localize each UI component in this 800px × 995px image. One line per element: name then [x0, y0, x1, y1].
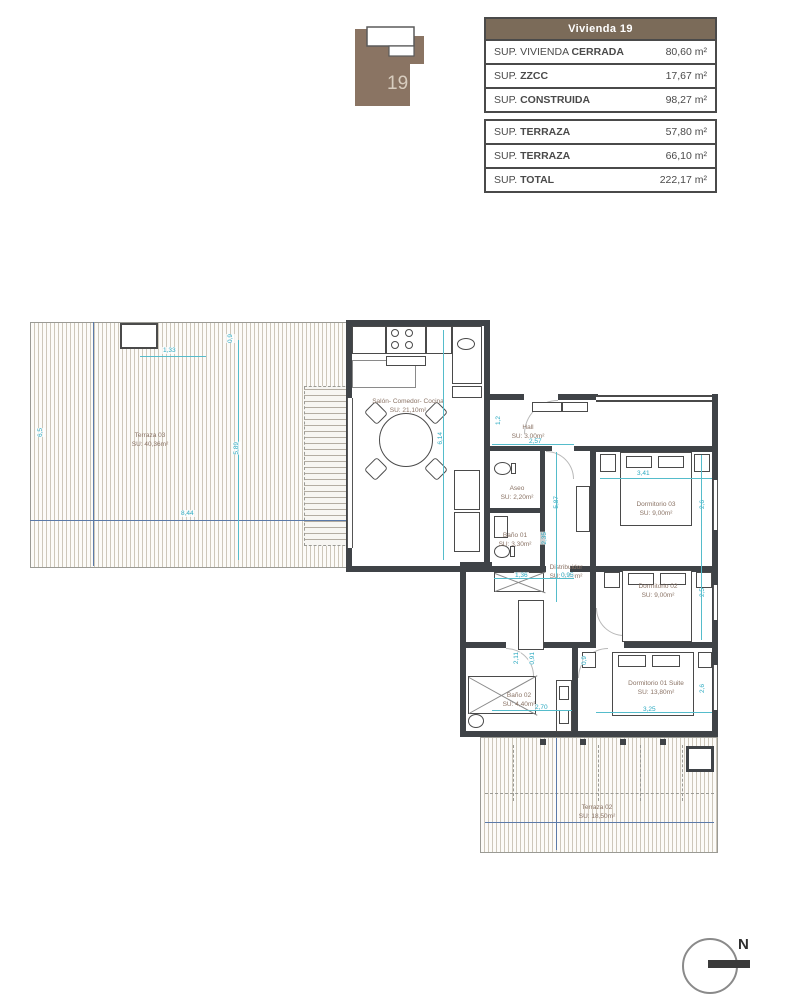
- dimension-label: 1,33: [162, 347, 177, 354]
- hob-burner: [391, 341, 399, 349]
- outdoor-box: [686, 746, 714, 772]
- dimension-label: 0,9: [580, 656, 589, 665]
- construction-line: [556, 738, 557, 850]
- pillow: [658, 456, 684, 468]
- row-label: SUP. TERRAZA: [494, 150, 570, 162]
- vanity-basin: [559, 686, 569, 700]
- dimension-label: 2,35: [540, 532, 549, 545]
- hob-burner: [391, 329, 399, 337]
- dimension-label: 2,11: [512, 652, 521, 664]
- toilet: [468, 714, 484, 728]
- hall-cabinet: [532, 402, 562, 412]
- kitchen-counter: [426, 326, 452, 354]
- nightstand: [694, 454, 710, 472]
- kitchen-sink-counter: [452, 326, 482, 384]
- dimension-line: [494, 578, 574, 579]
- toilet-tank: [511, 463, 516, 474]
- dimension-line: [600, 478, 712, 479]
- dimension-line: [492, 710, 572, 711]
- dimension-label: 0,9: [226, 334, 235, 343]
- dimension-label: 6,5: [36, 428, 45, 437]
- table-row: SUP. TOTAL 222,17 m²: [486, 167, 715, 191]
- nightstand: [696, 572, 712, 588]
- construction-line: [485, 822, 714, 823]
- skylight-box: [120, 323, 158, 349]
- nightstand: [698, 652, 712, 668]
- dimension-label: 5,89: [232, 442, 241, 455]
- row-value: 80,60 m²: [666, 46, 707, 58]
- room-label-dormitorio-02: Dormitorio 02SU: 9,00m²: [620, 575, 696, 600]
- unit-footprint-logo: 19: [332, 16, 452, 111]
- wall-segment: [624, 642, 718, 648]
- chair: [364, 457, 388, 481]
- nightstand: [604, 572, 620, 588]
- summary-table-header: Vivienda 19: [486, 19, 715, 39]
- dimension-line: [443, 330, 444, 560]
- wall-segment: [558, 394, 598, 400]
- hall-cabinet: [562, 402, 588, 412]
- wall-segment: [490, 508, 545, 513]
- sofa-seat: [454, 470, 480, 510]
- row-label: SUP. VIVIENDA CERRADA: [494, 46, 624, 58]
- dimension-label: 8,44: [180, 510, 195, 517]
- door-arc: [596, 608, 624, 636]
- room-label-bano-01: Baño 01SU: 3,30m²: [492, 524, 538, 549]
- hob-burner: [405, 341, 413, 349]
- room-label-dormitorio-03: Dormitorio 03SU: 9,00m²: [620, 493, 692, 518]
- dimension-line: [701, 455, 702, 640]
- room-label-terraza-02: Terraza 02SU: 18,50m²: [566, 796, 628, 821]
- window: [713, 585, 718, 620]
- closet: [576, 486, 590, 532]
- pergola-post: [660, 739, 666, 745]
- row-value: 222,17 m²: [660, 174, 707, 186]
- closet: [518, 600, 544, 650]
- wall-segment: [484, 400, 490, 572]
- door-arc: [546, 451, 574, 479]
- pillow: [626, 456, 652, 468]
- row-label: SUP. ZZCC: [494, 70, 548, 82]
- dimension-label: 1,2: [494, 416, 503, 425]
- pergola-slats: [304, 386, 350, 546]
- row-label: SUP. TERRAZA: [494, 126, 570, 138]
- room-label-dormitorio-01-suite: Dormitorio 01 SuiteSU: 13,80m²: [616, 672, 696, 697]
- row-label: SUP. TOTAL: [494, 174, 554, 186]
- logo-unit-number: 19: [387, 73, 408, 94]
- chair: [424, 457, 448, 481]
- dimension-label: 3,41: [636, 470, 651, 477]
- summary-table: Vivienda 19 SUP. VIVIENDA CERRADA 80,60 …: [484, 17, 717, 113]
- row-value: 17,67 m²: [666, 70, 707, 82]
- north-label: N: [738, 936, 749, 953]
- room-label-aseo: AseoSU: 2,20m²: [495, 477, 539, 502]
- row-value: 98,27 m²: [666, 94, 707, 106]
- pillow: [652, 655, 680, 667]
- sink-basin: [457, 338, 475, 350]
- north-compass: N: [682, 932, 768, 992]
- row-value: 57,80 m²: [666, 126, 707, 138]
- sofa-seat: [454, 512, 480, 552]
- room-label-terraza-03: Terraza 03SU: 40,36m²: [110, 424, 190, 449]
- kitchen-oven: [386, 356, 426, 366]
- toilet: [494, 462, 511, 475]
- wall-segment: [460, 562, 466, 737]
- dimension-label: 2,6: [698, 500, 707, 509]
- dimension-label: 0,91: [528, 652, 537, 665]
- kitchen-fridge: [352, 326, 386, 354]
- dimension-line: [556, 452, 557, 602]
- construction-line: [30, 520, 348, 521]
- wall-segment: [572, 642, 578, 737]
- window: [713, 480, 718, 530]
- table-row: SUP. CONSTRUIDA 98,27 m²: [486, 87, 715, 111]
- dining-table: [379, 413, 433, 467]
- dimension-label: 2,6: [698, 684, 707, 693]
- window: [596, 395, 712, 402]
- footprint-icon: 19: [332, 16, 452, 111]
- pillow: [618, 655, 646, 667]
- pergola-post: [620, 739, 626, 745]
- dimension-line: [492, 444, 574, 445]
- wall-segment: [484, 394, 524, 400]
- pergola-line: [485, 793, 714, 794]
- dimension-label: 2,5: [698, 588, 707, 597]
- vanity-basin: [559, 710, 569, 724]
- table-row: SUP. VIVIENDA CERRADA 80,60 m²: [486, 39, 715, 63]
- pergola-post: [580, 739, 586, 745]
- compass-needle-icon: [708, 960, 750, 968]
- wall-segment: [460, 731, 718, 737]
- window: [713, 665, 718, 710]
- row-label: SUP. CONSTRUIDA: [494, 94, 590, 106]
- row-value: 66,10 m²: [666, 150, 707, 162]
- wall-segment: [590, 446, 596, 572]
- construction-line: [93, 322, 94, 566]
- pergola-post: [540, 739, 546, 745]
- table-row: SUP. TERRAZA 66,10 m²: [486, 143, 715, 167]
- dimension-line: [596, 712, 712, 713]
- dimension-line: [140, 356, 206, 357]
- wall-segment: [466, 642, 506, 648]
- table-row: SUP. TERRAZA 57,80 m²: [486, 121, 715, 143]
- nightstand: [600, 454, 616, 472]
- hob-burner: [405, 329, 413, 337]
- table-row: SUP. ZZCC 17,67 m²: [486, 63, 715, 87]
- terrace-03-deck: [30, 322, 350, 568]
- glass-door: [347, 398, 353, 548]
- terrace-table: SUP. TERRAZA 57,80 m² SUP. TERRAZA 66,10…: [484, 119, 717, 193]
- wall-segment: [484, 320, 490, 400]
- wall-segment: [540, 450, 545, 510]
